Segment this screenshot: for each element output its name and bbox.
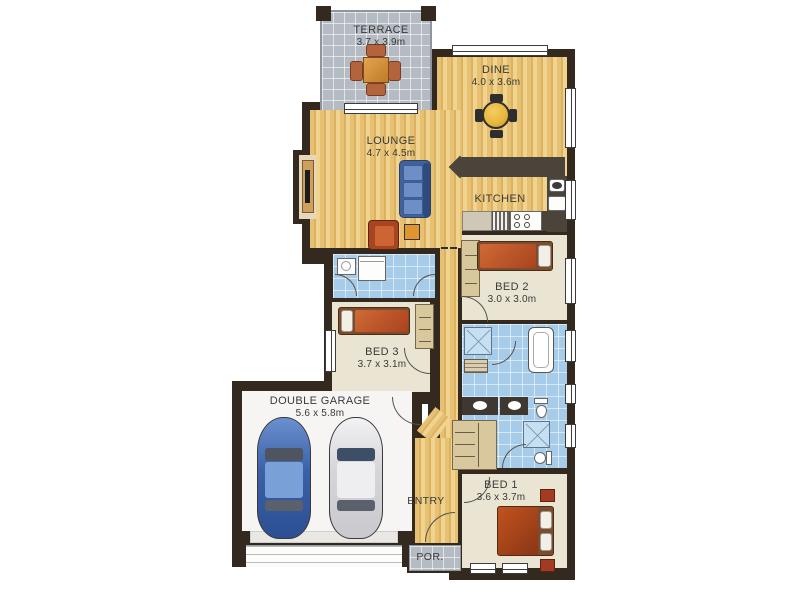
window-ensuite-east bbox=[565, 384, 576, 404]
bed-icon bbox=[477, 241, 553, 271]
garage-dims: 5.6 x 5.8m bbox=[250, 408, 390, 419]
terrace-dims: 3.7 x 3.9m bbox=[311, 37, 451, 48]
burner-icon bbox=[524, 222, 530, 228]
burner-icon bbox=[524, 214, 530, 220]
wardrobe-shelf bbox=[419, 329, 431, 330]
bed1-label: BED 1 bbox=[431, 479, 571, 491]
wardrobe-shelf bbox=[419, 341, 431, 342]
car-icon bbox=[329, 417, 383, 539]
porch-label: POR. bbox=[360, 551, 500, 563]
car-windshield bbox=[337, 448, 375, 461]
wardrobe-icon bbox=[415, 304, 434, 349]
dine-label: DINE bbox=[426, 64, 566, 76]
robe-shelf bbox=[478, 423, 479, 467]
walkin-robe bbox=[452, 420, 497, 470]
vanity-icon bbox=[500, 397, 528, 415]
kitchen-counter-end bbox=[542, 211, 567, 231]
dining-table-icon bbox=[482, 101, 510, 129]
bed-pillow bbox=[538, 245, 551, 267]
toilet-icon bbox=[534, 398, 548, 404]
robe-rail bbox=[455, 432, 475, 433]
washer-lid-line bbox=[360, 261, 384, 262]
shower-icon bbox=[523, 421, 550, 448]
burner-icon bbox=[514, 222, 520, 228]
dishwasher-icon bbox=[492, 211, 510, 231]
sink-basin-icon bbox=[552, 182, 562, 189]
window-bath-east bbox=[565, 330, 576, 362]
window-bed1-south bbox=[470, 563, 496, 574]
bed-blanket bbox=[480, 244, 536, 268]
bedside-table-icon bbox=[540, 559, 555, 572]
bed1-dims: 3.6 x 3.7m bbox=[431, 492, 571, 503]
bathtub-inner bbox=[533, 332, 549, 368]
dining-chair-icon bbox=[509, 109, 517, 122]
shower-icon bbox=[464, 327, 492, 355]
bed2-label: BED 2 bbox=[442, 281, 582, 293]
vanity-icon bbox=[462, 397, 498, 415]
car-icon bbox=[257, 417, 311, 539]
terrace-column bbox=[316, 6, 331, 21]
bed-blanket bbox=[355, 310, 408, 332]
window-dine-east bbox=[565, 88, 576, 148]
outdoor-chair-icon bbox=[350, 61, 363, 81]
bed3-dims: 3.7 x 3.1m bbox=[312, 359, 452, 370]
washing-machine-icon bbox=[358, 256, 386, 281]
outdoor-chair-icon bbox=[366, 83, 386, 96]
wardrobe-shelf bbox=[465, 269, 477, 270]
car-rear-window bbox=[265, 500, 303, 511]
outdoor-chair-icon bbox=[388, 61, 401, 81]
robe-rail bbox=[455, 456, 475, 457]
bed-blanket bbox=[498, 507, 538, 555]
car-windshield bbox=[265, 448, 303, 461]
sofa-cushion bbox=[403, 182, 423, 198]
wardrobe-shelf bbox=[419, 317, 431, 318]
cased-opening-mark bbox=[450, 247, 457, 249]
lounge-label: LOUNGE bbox=[321, 135, 461, 147]
wardrobe-shelf bbox=[465, 255, 477, 256]
terrace-column bbox=[421, 6, 436, 21]
tv-icon bbox=[305, 170, 310, 203]
sofa-cushion bbox=[403, 165, 423, 181]
kitchen-island-bench bbox=[462, 157, 565, 177]
window-wc-east bbox=[565, 424, 576, 448]
window-dine-top bbox=[452, 45, 548, 56]
bed-pillow bbox=[540, 511, 552, 529]
linen-shelf-icon bbox=[464, 359, 488, 373]
cased-opening-mark bbox=[441, 247, 448, 249]
basin-icon bbox=[508, 401, 521, 410]
car-roof bbox=[337, 462, 375, 498]
bed-pillow bbox=[540, 533, 552, 551]
armchair-icon bbox=[368, 220, 399, 250]
bed2-dims: 3.0 x 3.0m bbox=[442, 294, 582, 305]
sofa-icon bbox=[399, 160, 431, 218]
garage-label: DOUBLE GARAGE bbox=[250, 395, 390, 407]
robe-rail bbox=[455, 444, 475, 445]
lounge-dims: 4.7 x 4.5m bbox=[321, 148, 461, 159]
kitchen-label: KITCHEN bbox=[430, 193, 570, 205]
sofa-back bbox=[423, 163, 430, 217]
armchair-cushion bbox=[375, 226, 394, 246]
car-roof bbox=[265, 462, 303, 498]
bed3-label: BED 3 bbox=[312, 346, 452, 358]
window-lounge-terrace bbox=[344, 103, 418, 114]
side-table-icon bbox=[404, 224, 420, 240]
burner-icon bbox=[514, 214, 520, 220]
floor-plan: TERRACE 3.7 x 3.9m DINE 4.0 x 3.6m LOUNG… bbox=[0, 0, 800, 600]
kitchen-cabinet bbox=[462, 211, 492, 231]
terrace-label: TERRACE bbox=[311, 24, 451, 36]
dining-chair-icon bbox=[490, 130, 503, 138]
bathtub-icon bbox=[528, 327, 554, 373]
toilet-icon bbox=[546, 451, 552, 465]
bed-icon bbox=[338, 307, 410, 335]
toilet-bowl-icon bbox=[534, 452, 546, 464]
bed-pillow bbox=[341, 310, 353, 332]
window-bed1-south bbox=[502, 563, 528, 574]
sofa-cushion bbox=[403, 199, 423, 215]
tub-basin-icon bbox=[341, 261, 351, 271]
dine-dims: 4.0 x 3.6m bbox=[426, 77, 566, 88]
bed-icon bbox=[497, 506, 554, 556]
basin-icon bbox=[473, 401, 487, 410]
outdoor-table-icon bbox=[363, 57, 389, 83]
